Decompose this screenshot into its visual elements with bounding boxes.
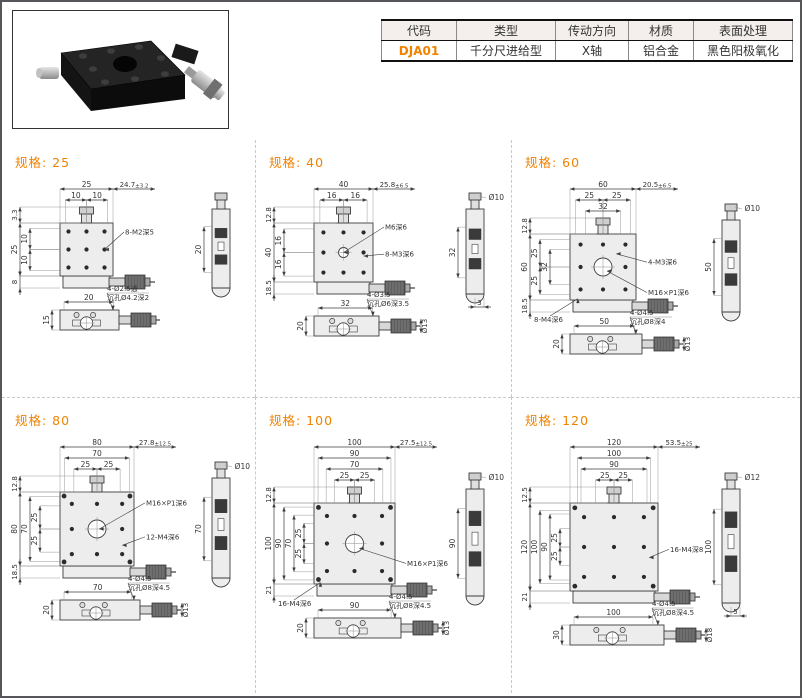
dimension-label: Ø10 bbox=[745, 204, 761, 213]
hole-callout-line1: 4-Ø2.5通 bbox=[107, 284, 138, 293]
dimension-label: 21 bbox=[521, 593, 529, 602]
dimension-label: 24.7±3.2 bbox=[120, 181, 149, 190]
bottom-view: 1004-Ø4.5沉孔Ø8深4.530Ø18 bbox=[552, 600, 714, 645]
dimension-label: Ø12 bbox=[745, 473, 761, 482]
dimension-label: 27.5±12.5 bbox=[400, 439, 432, 448]
micrometer-assembly bbox=[181, 61, 228, 104]
dimension-label: Ø10 bbox=[489, 473, 505, 482]
value-type: 千分尺进给型 bbox=[457, 41, 556, 62]
hole-callout-line1: 4-Ø4.5 bbox=[128, 575, 152, 583]
catalog-page: 代码 类型 传动方向 材质 表面处理 DJA01 千分尺进给型 X轴 铝合金 黑… bbox=[0, 0, 802, 698]
technical-drawing: 25101024.7±3.22510103.388-M2深520204-Ø2.5… bbox=[2, 173, 252, 403]
dimension-label: 90 bbox=[540, 542, 549, 552]
dimension-label: 25 bbox=[600, 471, 610, 480]
dimension-label: 18.5 bbox=[11, 564, 19, 580]
spec-table-value-row: DJA01 千分尺进给型 X轴 铝合金 黑色阳极氧化 bbox=[382, 41, 793, 62]
value-material: 铝合金 bbox=[629, 41, 694, 62]
spec-panel: 规格: 60 6025253220.5±6.56025253212.818.54… bbox=[511, 140, 800, 397]
dimension-label: 12.8 bbox=[265, 207, 273, 223]
dimension-label: 25 bbox=[82, 180, 92, 189]
col-surface-finish: 表面处理 bbox=[694, 20, 793, 41]
col-code: 代码 bbox=[382, 20, 457, 41]
dimension-label: 25 bbox=[340, 471, 350, 480]
dimension-label: 16 bbox=[274, 236, 283, 246]
dimension-label: 25 bbox=[104, 460, 114, 469]
spec-table-header-row: 代码 类型 传动方向 材质 表面处理 bbox=[382, 20, 793, 41]
spec-panel: 规格: 80 8070252527.8±12.58070252512.818.5… bbox=[2, 397, 255, 693]
side-view: Ø10323 bbox=[448, 193, 504, 309]
dimension-label: 18.5 bbox=[265, 280, 273, 296]
hole-callout-line1: 4-Ø4.5 bbox=[652, 600, 676, 608]
hole-callout-line2: 沉孔Ø8深4.5 bbox=[652, 608, 694, 617]
dimension-label: 25 bbox=[10, 245, 19, 255]
dimension-label: 25 bbox=[360, 471, 370, 480]
hole-callout-line2: 沉孔Ø8深4.5 bbox=[389, 601, 431, 610]
side-view: 20 bbox=[194, 193, 230, 297]
dimension-label: 120 bbox=[520, 540, 529, 555]
dimension-label: 32 bbox=[540, 262, 549, 272]
dimension-label: 100 bbox=[606, 608, 621, 617]
technical-drawing: 12010090252553.5±2512010090252512.52116-… bbox=[512, 431, 762, 661]
stage-center-hole bbox=[113, 56, 137, 72]
dimension-label: 32 bbox=[448, 248, 457, 258]
dimension-label: 30 bbox=[552, 630, 561, 640]
side-view: Ø1050 bbox=[704, 204, 760, 321]
dimension-label: 100 bbox=[607, 449, 622, 458]
dimension-label: 50 bbox=[599, 317, 609, 326]
dimension-label: 25 bbox=[618, 471, 628, 480]
header-area: 代码 类型 传动方向 材质 表面处理 DJA01 千分尺进给型 X轴 铝合金 黑… bbox=[2, 2, 800, 140]
dimension-label: 10 bbox=[20, 255, 29, 265]
bottom-view: 204-Ø2.5通沉孔Ø4.2深215 bbox=[42, 284, 160, 330]
plan-view bbox=[314, 487, 437, 597]
dimension-label: 90 bbox=[350, 449, 360, 458]
dimension-label: 20 bbox=[296, 623, 305, 633]
spec-panel: 规格: 40 40161625.8±6.540161612.818.5M6深68… bbox=[255, 140, 511, 397]
side-view: Ø1090 bbox=[448, 473, 504, 605]
hole-callout-line1: 4-Ø3.5 bbox=[367, 291, 391, 299]
dimension-label: 27.8±12.5 bbox=[139, 439, 171, 448]
product-photo-illustration bbox=[13, 11, 228, 128]
dimension-label: 15 bbox=[42, 315, 51, 325]
dimension-label: 25 bbox=[584, 191, 594, 200]
micrometer-mount bbox=[171, 44, 198, 65]
thread-callout-label: M6深6 bbox=[385, 223, 407, 232]
dimension-label: 25 bbox=[550, 551, 559, 561]
dimension-label: 25.8±6.5 bbox=[380, 181, 409, 190]
thread-callout-label: M16×P1深6 bbox=[648, 288, 689, 297]
dimension-label: Ø13 bbox=[182, 603, 190, 617]
col-material: 材质 bbox=[629, 20, 694, 41]
dimension-label: 80 bbox=[92, 438, 102, 447]
dimension-label: 32 bbox=[598, 202, 608, 211]
hole-callout-line2: 沉孔Ø8深4.5 bbox=[128, 583, 170, 592]
dimension-label: 25 bbox=[294, 549, 303, 559]
value-surface-finish: 黑色阳极氧化 bbox=[694, 41, 793, 62]
dimension-label: 25 bbox=[30, 512, 39, 522]
dimension-label: 40 bbox=[339, 180, 349, 189]
thread-callout-label: 4-M3深6 bbox=[648, 258, 677, 267]
technical-drawing: 8070252527.8±12.58070252512.818.5M16×P1深… bbox=[2, 431, 252, 661]
dimension-label: 80 bbox=[10, 524, 19, 534]
dimension-label: 12.8 bbox=[11, 476, 19, 492]
dimension-label: 70 bbox=[350, 460, 360, 469]
hole-callout-line1: 4-Ø4.5 bbox=[389, 593, 413, 601]
dimension-label: 20.5±6.5 bbox=[643, 181, 672, 190]
dimension-label: 10 bbox=[20, 234, 29, 244]
dimension-label: 12.8 bbox=[521, 218, 529, 234]
dimension-label: 12.8 bbox=[265, 487, 273, 503]
dimension-label: 20 bbox=[552, 339, 561, 349]
dimension-label: Ø18 bbox=[706, 628, 714, 642]
dimension-label: 40 bbox=[264, 248, 273, 258]
dimension-label: 32 bbox=[341, 299, 351, 308]
dimension-label: 18.5 bbox=[521, 298, 529, 314]
spec-title: 规格: 100 bbox=[269, 410, 511, 429]
dimension-label: 21 bbox=[265, 586, 273, 595]
dimension-label: Ø10 bbox=[489, 193, 505, 202]
dimension-label: 70 bbox=[284, 539, 293, 549]
stage-photo bbox=[36, 41, 228, 111]
dimension-label: 70 bbox=[20, 524, 29, 534]
spec-title: 规格: 25 bbox=[15, 152, 255, 171]
side-view: Ø1070 bbox=[194, 462, 250, 587]
spec-panel: 规格: 120 12010090252553.5±251201009025251… bbox=[511, 397, 800, 693]
bottom-view: 504-Ø4.5沉孔Ø8深420Ø13 bbox=[552, 309, 692, 354]
dimension-label: 90 bbox=[609, 460, 619, 469]
hole-callout-line2: 沉孔Ø8深4 bbox=[630, 317, 666, 326]
dimension-label: 60 bbox=[598, 180, 608, 189]
thread-callout-label: 16-M4深8 bbox=[670, 545, 703, 554]
dimension-label: 25 bbox=[294, 528, 303, 538]
left-knob-tip bbox=[36, 68, 42, 78]
dimension-label: 60 bbox=[520, 262, 529, 272]
dimension-label: Ø13 bbox=[443, 621, 451, 635]
dimension-label: Ø10 bbox=[235, 462, 251, 471]
dimension-label: 100 bbox=[264, 536, 273, 551]
dimension-label: 3.3 bbox=[11, 209, 19, 220]
dimension-label: 10 bbox=[92, 191, 102, 200]
thread-callout-label: 8-M3深6 bbox=[385, 250, 414, 259]
dimension-label: 20 bbox=[296, 321, 305, 331]
thread-callout-label: M16×P1深6 bbox=[407, 559, 448, 568]
spec-title: 规格: 80 bbox=[15, 410, 255, 429]
dimension-label: 120 bbox=[607, 438, 622, 447]
product-photo bbox=[12, 10, 229, 129]
dimension-label: Ø13 bbox=[421, 319, 429, 333]
bottom-view: 704-Ø4.5沉孔Ø8深4.520Ø13 bbox=[42, 575, 190, 620]
dimension-label: Ø13 bbox=[684, 337, 692, 351]
hole-callout-line2: 沉孔Ø6深3.5 bbox=[367, 299, 409, 308]
dimension-label: 12.5 bbox=[521, 487, 529, 503]
dimension-label: 25 bbox=[530, 248, 539, 258]
spec-title: 规格: 40 bbox=[269, 152, 511, 171]
dimension-label: 10 bbox=[71, 191, 81, 200]
spec-panels: 规格: 25 25101024.7±3.22510103.388-M2深5202… bbox=[2, 140, 800, 693]
thread-callout-label: 8-M4深6 bbox=[534, 315, 563, 324]
dimension-label: 100 bbox=[704, 540, 713, 555]
col-drive-direction: 传动方向 bbox=[556, 20, 629, 41]
dimension-label: 16 bbox=[327, 191, 337, 200]
dimension-label: 70 bbox=[93, 583, 103, 592]
dimension-label: 20 bbox=[84, 293, 94, 302]
dimension-label: 3 bbox=[477, 299, 481, 307]
dimension-label: 20 bbox=[194, 245, 203, 255]
dimension-label: 100 bbox=[347, 438, 362, 447]
dimension-label: 25 bbox=[550, 533, 559, 543]
dimension-label: 25 bbox=[30, 536, 39, 546]
bottom-view: 324-Ø3.5沉孔Ø6深3.520Ø13 bbox=[296, 291, 429, 336]
thread-callout-label: 12-M4深6 bbox=[146, 532, 180, 541]
value-code: DJA01 bbox=[382, 41, 457, 62]
technical-drawing: 40161625.8±6.540161612.818.5M6深68-M3深6Ø1… bbox=[256, 173, 506, 403]
dimension-label: 25 bbox=[612, 191, 622, 200]
dimension-label: 25 bbox=[81, 460, 91, 469]
dimension-label: 70 bbox=[194, 524, 203, 534]
dimension-label: 50 bbox=[704, 262, 713, 272]
thread-callout-label: 8-M2深5 bbox=[125, 227, 154, 236]
dimension-label: 16 bbox=[274, 259, 283, 269]
bottom-view: 904-Ø4.5沉孔Ø8深4.520Ø13 bbox=[296, 593, 451, 638]
dimension-label: 90 bbox=[274, 539, 283, 549]
plan-view bbox=[60, 476, 176, 579]
dimension-label: 70 bbox=[92, 449, 102, 458]
thread-callout-label: 16-M4深6 bbox=[278, 599, 312, 608]
technical-drawing: 1009070252527.5±12.51009070252512.821M16… bbox=[256, 431, 506, 661]
spec-title: 规格: 60 bbox=[525, 152, 800, 171]
dimension-label: 100 bbox=[530, 540, 539, 555]
technical-drawing: 6025253220.5±6.56025253212.818.54-M3深6M1… bbox=[512, 173, 762, 403]
hole-callout-line2: 沉孔Ø4.2深2 bbox=[107, 293, 149, 302]
spec-table: 代码 类型 传动方向 材质 表面处理 DJA01 千分尺进给型 X轴 铝合金 黑… bbox=[381, 19, 793, 62]
dimension-label: 53.5±25 bbox=[665, 439, 692, 448]
dimension-label: 25 bbox=[530, 276, 539, 286]
spec-panel: 规格: 25 25101024.7±3.22510103.388-M2深5202… bbox=[2, 140, 255, 397]
dimension-label: 16 bbox=[351, 191, 361, 200]
dimension-label: 8 bbox=[11, 280, 19, 284]
hole-callout-line1: 4-Ø4.5 bbox=[630, 309, 654, 317]
dimension-label: 90 bbox=[350, 601, 360, 610]
dimension-label: 5 bbox=[733, 608, 737, 616]
dimension-label: 90 bbox=[448, 539, 457, 549]
value-drive-direction: X轴 bbox=[556, 41, 629, 62]
dimension-label: 20 bbox=[42, 605, 51, 615]
thread-callout-label: M16×P1深6 bbox=[146, 498, 187, 507]
spec-title: 规格: 120 bbox=[525, 410, 800, 429]
thread-callout: 16-M4深6 bbox=[278, 582, 322, 608]
side-view: Ø121005 bbox=[704, 473, 760, 618]
spec-panel: 规格: 100 1009070252527.5±12.5100907025251… bbox=[255, 397, 511, 693]
col-type: 类型 bbox=[457, 20, 556, 41]
